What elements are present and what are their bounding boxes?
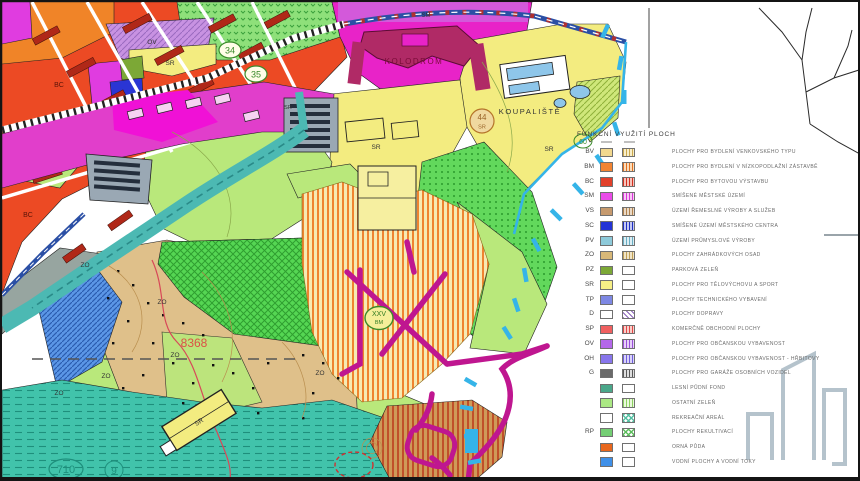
legend-swatch-solid	[600, 236, 613, 246]
legend-row-label: PLOCHY DOPRAVY	[672, 311, 724, 317]
legend-row-label: PLOCHY PRO OBČANSKOU VYBAVENOST	[672, 341, 785, 347]
zoning-map-sheet: OV SR 34 35 SM KOLODROM KOUPALIŠTĚ 44 SR…	[0, 0, 860, 481]
legend-swatch-pattern	[622, 369, 635, 379]
legend-row: ZOPLOCHY ZAHRÁDKOVÝCH OSAD	[577, 249, 859, 264]
legend-row-label: PLOCHY REKULTIVACÍ	[672, 429, 733, 435]
legend-swatch-solid	[600, 192, 613, 202]
legend-row-label: PLOCHY PRO GARÁŽE OSOBNÍCH VOZIDEL	[672, 370, 791, 376]
legend-row: RPPLOCHY REKULTIVACÍ	[577, 426, 859, 441]
legend-swatch-solid	[600, 457, 613, 467]
legend-code: OV	[577, 340, 594, 347]
legend-row: VSÚZEMÍ ŘEMESLNÉ VÝROBY A SLUŽEB	[577, 205, 859, 220]
legend-swatch-solid	[600, 148, 613, 158]
legend-code: SP	[577, 325, 594, 332]
legend-swatch-pattern	[622, 325, 635, 335]
legend-code: PZ	[577, 266, 594, 273]
legend-swatch-solid	[600, 398, 613, 408]
legend-swatch-pattern	[622, 398, 635, 408]
map-label-sr-right: SR	[544, 146, 553, 153]
legend-swatch-pattern	[622, 354, 635, 364]
legend-swatch-pattern	[622, 280, 635, 290]
legend-swatch-solid	[600, 428, 613, 438]
map-label-zo-4: ZO	[170, 352, 179, 359]
map-label-koupaliste: KOUPALIŠTĚ	[499, 107, 562, 116]
legend-row-label: SMÍŠENÉ ÚZEMÍ MĚSTSKÉHO CENTRA	[672, 223, 778, 229]
legend-swatch-pattern	[622, 413, 635, 423]
legend-swatch-solid	[600, 207, 613, 217]
legend-swatch-solid	[600, 413, 613, 423]
map-label-zo-2: ZO	[157, 299, 166, 306]
legend-swatch-pattern	[622, 339, 635, 349]
map-label-bc-1: BC	[54, 82, 64, 89]
legend-row-label: PLOCHY PRO BYDLENÍ VENKOVSKÉHO TYPU	[672, 149, 796, 155]
legend-swatch-solid	[600, 384, 613, 394]
legend-swatch-pattern	[622, 443, 635, 453]
legend-code: D	[577, 310, 594, 317]
map-label-44: 44	[478, 113, 487, 122]
legend-swatch-solid	[600, 310, 613, 320]
legend-title: FUNKČNÍ VYUŽITÍ PLOCH	[577, 131, 859, 138]
legend-row: SMSMÍŠENÉ MĚSTSKÉ ÚZEMÍ	[577, 190, 859, 205]
legend-code: RP	[577, 428, 594, 435]
legend-swatch-pattern	[622, 207, 635, 217]
map-label-zo-3: ZO	[101, 373, 110, 380]
map-label-44-sr: SR	[478, 125, 486, 131]
legend-row-label: ÚZEMÍ ŘEMESLNÉ VÝROBY A SLUŽEB	[672, 208, 776, 214]
map-label-8368: 8368	[181, 336, 208, 350]
legend-code: BM	[577, 163, 594, 170]
map-label-xxv-bm: BM	[375, 320, 384, 326]
legend-column-heads	[601, 141, 647, 144]
legend-row-label: PLOCHY PRO BYTOVOU VÝSTAVBU	[672, 179, 769, 185]
legend-row: TPPLOCHY TECHNICKÉHO VYBAVENÍ	[577, 294, 859, 309]
legend-row: GPLOCHY PRO GARÁŽE OSOBNÍCH VOZIDEL	[577, 367, 859, 382]
legend-row-label: LESNÍ PŮDNÍ FOND	[672, 385, 725, 391]
legend-row-label: VODNÍ PLOCHY A VODNÍ TOKY	[672, 459, 756, 465]
map-label-zo-5: ZO	[54, 390, 63, 397]
map-label-xxv: XXV	[372, 311, 386, 318]
legend-code: ZO	[577, 251, 594, 258]
legend: FUNKČNÍ VYUŽITÍ PLOCH BVPLOCHY PRO BYDLE…	[577, 131, 859, 138]
legend-row: OVPLOCHY PRO OBČANSKOU VYBAVENOST	[577, 338, 859, 353]
legend-row-label: PLOCHY TECHNICKÉHO VYBAVENÍ	[672, 297, 767, 303]
map-label-sr-small: SR	[284, 105, 292, 111]
legend-row: BCPLOCHY PRO BYTOVOU VÝSTAVBU	[577, 176, 859, 191]
legend-swatch-pattern	[622, 162, 635, 172]
map-label-sr-center: SR	[371, 144, 380, 151]
map-label-9: 9	[111, 466, 117, 477]
legend-row-label: PLOCHY ZAHRÁDKOVÝCH OSAD	[672, 252, 761, 258]
map-label-zo-6: ZO	[315, 370, 324, 377]
map-label-zo-1: ZO	[80, 262, 89, 269]
legend-swatch-pattern	[622, 266, 635, 276]
legend-row-label: PLOCHY PRO OBČANSKOU VYBAVENOST - HŘBITO…	[672, 356, 820, 362]
legend-swatch-solid	[600, 280, 613, 290]
legend-row-label: PLOCHY PRO BYDLENÍ V NÍZKOPODLAŽNÍ ZÁSTA…	[672, 164, 818, 170]
legend-code: PV	[577, 237, 594, 244]
legend-row-label: REKREAČNÍ AREÁL	[672, 415, 725, 421]
legend-row: OHPLOCHY PRO OBČANSKOU VYBAVENOST - HŘBI…	[577, 353, 859, 368]
legend-swatch-solid	[600, 177, 613, 187]
legend-code: VS	[577, 207, 594, 214]
legend-swatch-solid	[600, 251, 613, 261]
legend-swatch-pattern	[622, 295, 635, 305]
legend-swatch-solid	[600, 295, 613, 305]
legend-swatch-pattern	[622, 384, 635, 394]
legend-swatch-solid	[600, 443, 613, 453]
legend-swatch-solid	[600, 221, 613, 231]
legend-row-label: PLOCHY PRO TĚLOVÝCHOVU A SPORT	[672, 282, 778, 288]
map-label-road-34: 34	[225, 46, 235, 56]
map-label-sm: SM	[422, 13, 431, 19]
legend-row: PZPARKOVÁ ZELEŇ	[577, 264, 859, 279]
legend-swatch-pattern	[622, 221, 635, 231]
legend-swatch-pattern	[622, 457, 635, 467]
legend-code: OH	[577, 355, 594, 362]
legend-code: SM	[577, 192, 594, 199]
legend-row: REKREAČNÍ AREÁL	[577, 412, 859, 427]
legend-row-label: OSTATNÍ ZELEŇ	[672, 400, 716, 406]
map-label-kolodrom: KOLODROM	[385, 57, 444, 66]
legend-swatch-solid	[600, 325, 613, 335]
legend-row-label: SMÍŠENÉ MĚSTSKÉ ÚZEMÍ	[672, 193, 745, 199]
legend-row-label: KOMERČNĚ OBCHODNÍ PLOCHY	[672, 326, 761, 332]
legend-row: ORNÁ PŮDA	[577, 441, 859, 456]
legend-row: LESNÍ PŮDNÍ FOND	[577, 382, 859, 397]
legend-swatch-solid	[600, 354, 613, 364]
legend-swatch-pattern	[622, 192, 635, 202]
legend-code: BC	[577, 178, 594, 185]
legend-code: BV	[577, 148, 594, 155]
map-label-bc-2: BC	[23, 212, 33, 219]
legend-swatch-solid	[600, 339, 613, 349]
legend-row-label: PARKOVÁ ZELEŇ	[672, 267, 719, 273]
map-label-60: 60	[579, 139, 587, 146]
legend-row: BVPLOCHY PRO BYDLENÍ VENKOVSKÉHO TYPU	[577, 146, 859, 161]
legend-swatch-pattern	[622, 251, 635, 261]
legend-row: DPLOCHY DOPRAVY	[577, 308, 859, 323]
legend-row: BMPLOCHY PRO BYDLENÍ V NÍZKOPODLAŽNÍ ZÁS…	[577, 161, 859, 176]
legend-code: SC	[577, 222, 594, 229]
legend-row-label: ÚZEMÍ PRŮMYSLOVÉ VÝROBY	[672, 238, 755, 244]
legend-swatch-pattern	[622, 177, 635, 187]
legend-row: OSTATNÍ ZELEŇ	[577, 397, 859, 412]
legend-swatch-pattern	[622, 148, 635, 158]
legend-row: SRPLOCHY PRO TĚLOVÝCHOVU A SPORT	[577, 279, 859, 294]
legend-swatch-pattern	[622, 310, 635, 320]
legend-row: PVÚZEMÍ PRŮMYSLOVÉ VÝROBY	[577, 235, 859, 250]
legend-swatch-pattern	[622, 428, 635, 438]
legend-code: TP	[577, 296, 594, 303]
legend-row: SCSMÍŠENÉ ÚZEMÍ MĚSTSKÉHO CENTRA	[577, 220, 859, 235]
legend-code: SR	[577, 281, 594, 288]
legend-rows: BVPLOCHY PRO BYDLENÍ VENKOVSKÉHO TYPUBMP…	[577, 146, 859, 471]
legend-swatch-solid	[600, 369, 613, 379]
legend-row-label: ORNÁ PŮDA	[672, 444, 705, 450]
map-label-ov: OV	[147, 39, 157, 46]
map-label-sr-strip: SR	[165, 60, 174, 67]
legend-swatch-pattern	[622, 236, 635, 246]
legend-swatch-solid	[600, 266, 613, 276]
map-label-710: 710	[57, 464, 75, 476]
legend-row: SPKOMERČNĚ OBCHODNÍ PLOCHY	[577, 323, 859, 338]
legend-code: G	[577, 369, 594, 376]
legend-row: VODNÍ PLOCHY A VODNÍ TOKY	[577, 456, 859, 471]
legend-swatch-solid	[600, 162, 613, 172]
map-label-road-35: 35	[251, 70, 261, 80]
